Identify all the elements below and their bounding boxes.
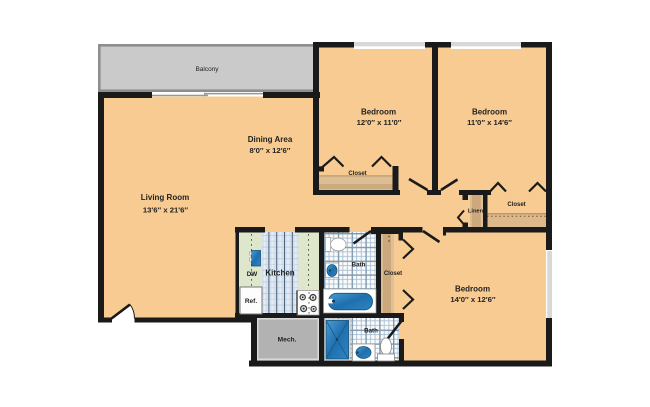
- svg-text:Bath: Bath: [352, 262, 366, 269]
- svg-text:Living Room: Living Room: [141, 193, 189, 202]
- svg-text:Closet: Closet: [507, 202, 525, 208]
- svg-text:Kitchen: Kitchen: [265, 269, 294, 278]
- svg-text:Bedroom: Bedroom: [472, 108, 507, 117]
- svg-text:Closet: Closet: [348, 171, 366, 177]
- svg-text:11′0″ x 14′6″: 11′0″ x 14′6″: [467, 118, 512, 127]
- svg-text:Mech.: Mech.: [278, 337, 297, 344]
- svg-text:Bedroom: Bedroom: [455, 285, 490, 294]
- svg-text:8′0″ x 12′6″: 8′0″ x 12′6″: [250, 146, 291, 155]
- svg-text:DW: DW: [247, 271, 258, 278]
- svg-text:13′6″ x 21′6″: 13′6″ x 21′6″: [143, 206, 189, 215]
- svg-text:Bath: Bath: [364, 328, 378, 335]
- svg-text:Bedroom: Bedroom: [361, 108, 396, 117]
- svg-text:14′0″ x 12′6″: 14′0″ x 12′6″: [450, 295, 496, 304]
- svg-text:Balcony: Balcony: [195, 66, 219, 73]
- svg-text:Ref.: Ref.: [245, 298, 257, 305]
- svg-text:Closet: Closet: [384, 271, 402, 277]
- svg-text:12′0″ x 11′0″: 12′0″ x 11′0″: [357, 118, 402, 127]
- svg-text:Linen: Linen: [468, 209, 484, 215]
- svg-text:Dining Area: Dining Area: [248, 135, 293, 144]
